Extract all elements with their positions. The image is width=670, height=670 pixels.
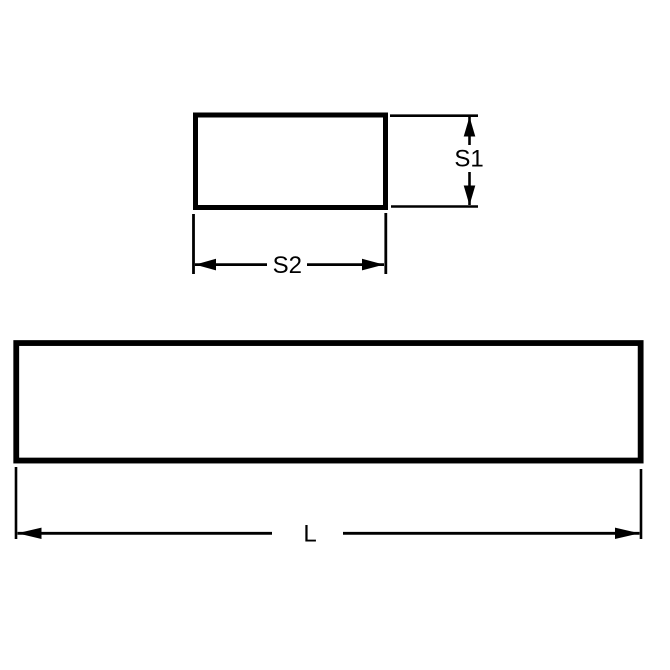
svg-text:L: L xyxy=(303,520,316,547)
svg-text:S2: S2 xyxy=(273,252,302,279)
svg-text:S1: S1 xyxy=(454,146,483,173)
